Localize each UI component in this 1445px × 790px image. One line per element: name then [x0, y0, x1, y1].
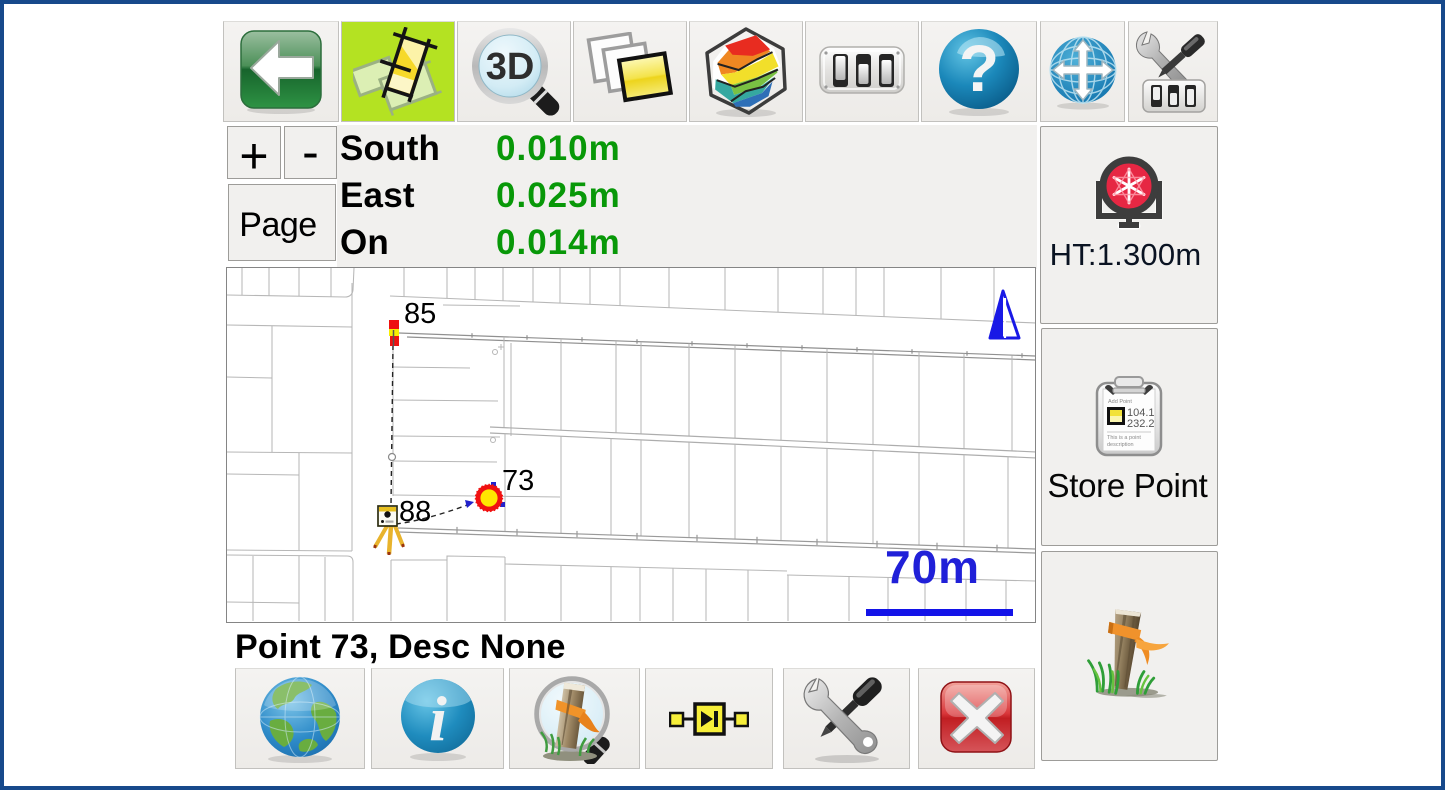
- svg-text:232.2: 232.2: [1127, 418, 1155, 430]
- svg-text:73: 73: [502, 465, 534, 497]
- svg-text:?: ?: [959, 31, 999, 105]
- svg-text:3D: 3D: [486, 46, 535, 88]
- svg-text:70m: 70m: [885, 541, 980, 593]
- svg-text:85: 85: [404, 298, 436, 330]
- svg-text:i: i: [429, 683, 447, 754]
- svg-text:88: 88: [399, 496, 431, 528]
- svg-text:This is a point: This is a point: [1107, 435, 1141, 441]
- svg-text:Add Point: Add Point: [1108, 399, 1132, 405]
- svg-text:description: description: [1107, 442, 1134, 448]
